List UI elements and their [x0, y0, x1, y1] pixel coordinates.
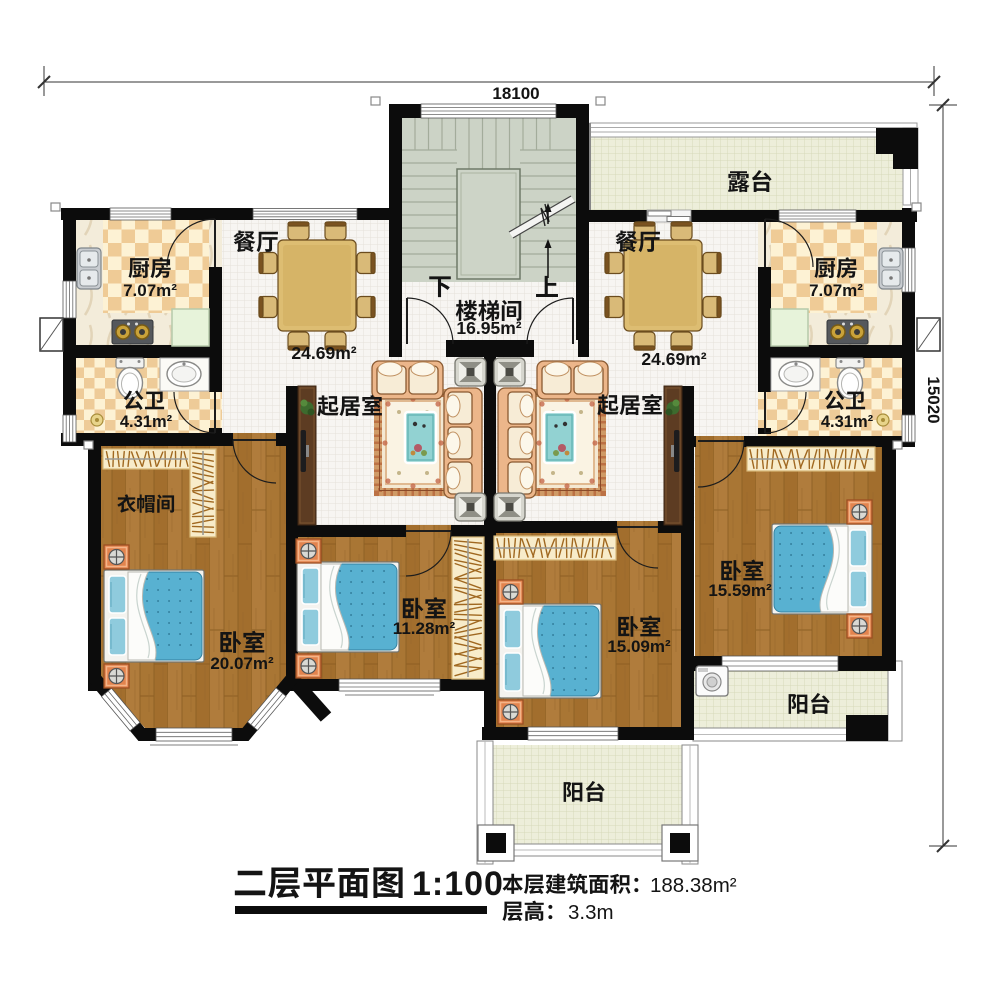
svg-text:4.31m²: 4.31m²	[120, 413, 173, 431]
svg-text:11.28m²: 11.28m²	[393, 619, 456, 638]
svg-text:7.07m²: 7.07m²	[123, 281, 177, 300]
svg-text:1:100: 1:100	[412, 865, 504, 903]
svg-text:15.59m²: 15.59m²	[708, 581, 772, 600]
svg-text:7.07m²: 7.07m²	[809, 281, 863, 300]
svg-text:16.95m²: 16.95m²	[456, 318, 521, 338]
svg-text:24.69m²: 24.69m²	[291, 343, 356, 363]
svg-text:20.07m²: 20.07m²	[210, 654, 274, 673]
svg-text:15020: 15020	[924, 376, 943, 423]
svg-text:188.38m²: 188.38m²	[650, 874, 737, 897]
svg-text:3.3m: 3.3m	[568, 901, 614, 924]
svg-text:24.69m²: 24.69m²	[641, 349, 706, 369]
svg-text:18100: 18100	[492, 84, 539, 103]
svg-text:4.31m²: 4.31m²	[821, 413, 874, 431]
svg-text:15.09m²: 15.09m²	[607, 637, 671, 656]
